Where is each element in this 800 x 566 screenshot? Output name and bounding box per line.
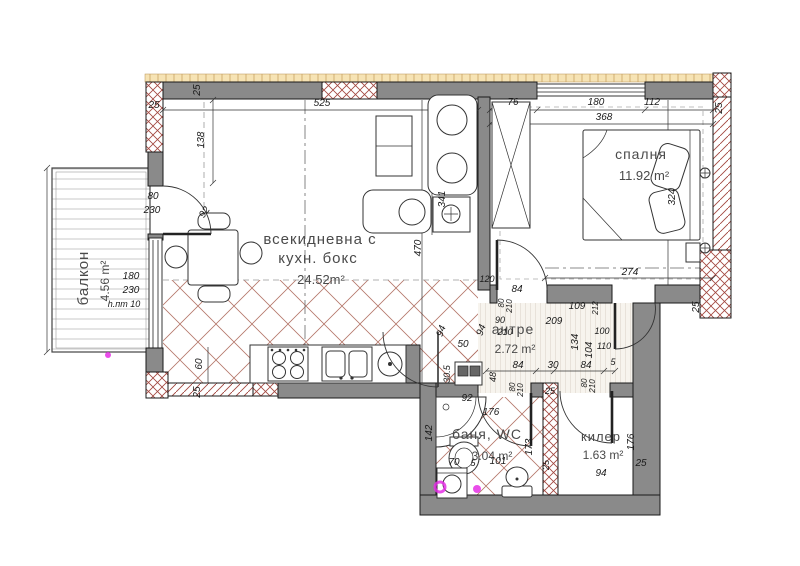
wall-left-bottom-pier [146,348,163,372]
wall-column-top [322,82,377,99]
dim-label-8: 230 [122,285,140,296]
kitchen-sink [322,347,372,381]
dim-label-19: 25 [691,301,702,314]
room-label-closet: килер [581,429,621,444]
dim-label-33: 104 [584,341,595,358]
dim-label-29: 90 [495,315,505,325]
wall-socket-symbol [700,243,710,253]
room-area-hallway: 2.72 m² [495,342,536,356]
room-label-bathroom: баня, WC [452,426,522,442]
room-area-bedroom: 11.92 m² [619,168,670,183]
room-area-living: 24.52m² [297,272,345,287]
dim-label-12: 112 [644,97,660,108]
room-label-living: всекидневна с [263,231,376,248]
wall-column-right-top [713,73,731,97]
dim-label-56: 25 [541,459,551,471]
dining-chair [198,286,230,302]
dim-label-43: 84 [512,360,524,371]
dim-label-21: 25 [192,386,203,399]
wall-kitchen-column [253,383,278,396]
wall-column-left-top [146,82,163,152]
vent-shaft [455,362,482,385]
sofa-cushion [437,153,467,183]
dim-label-2: 138 [196,131,207,148]
dim-label-55: 25 [544,386,556,396]
wall-kitchen-masonry [168,383,253,396]
dim-label-40: 48 [488,372,498,382]
floor-plan-page: балкон4.56 m²всекидневна скухн. бокс24.5… [0,0,800,566]
dim-label-23: 84 [511,284,523,295]
balcony-deck [52,168,150,352]
dim-label-13: 368 [596,112,613,123]
wall-left-pier [148,152,163,186]
dim-label-59: 25 [634,458,647,469]
room-label-balcony: балкон [75,251,92,306]
dim-label-26: 109 [569,301,586,312]
wall-kitchen-bottom [278,383,420,398]
floor-plan-drawing: балкон4.56 m²всекидневна скухн. бокс24.5… [0,0,800,566]
dining-chair [165,246,187,268]
balcony-structure [44,165,150,355]
kitchen-counter-group [250,345,406,383]
dim-label-52: 70 [448,457,460,468]
bedroom-window [537,84,645,96]
dim-label-20: 60 [194,358,205,370]
dining-table [188,230,238,285]
dim-label-50: 142 [424,424,435,441]
sofa-cushion [399,199,425,225]
dim-label-34: 100 [594,326,609,336]
dim-label-16: 470 [413,239,424,256]
dim-label-3: 525 [314,98,331,109]
dim-label-15: 341 [437,191,448,208]
sofa-cushion [437,105,467,135]
wall-column-left-bottom [146,372,168,398]
wall-socket-symbol [700,168,710,178]
dim-label-57: 94 [595,468,607,479]
dim-label-28: 209 [545,316,563,327]
dim-label-6: 230 [143,205,161,216]
living-window [149,238,162,348]
wall-right-external [713,97,731,250]
dim-label-32: 134 [570,333,581,350]
room-label-living-line2: кухн. бокс [278,250,358,267]
bedroom-furniture [492,102,710,262]
dim-label-30: 210 [496,327,512,337]
dim-label-35: 110 [597,341,611,351]
dim-label-17: 324 [667,188,678,205]
dim-label-7: 180 [123,271,140,282]
dim-label-54: 101 [490,456,507,467]
dim-label-47: 210 [588,379,597,394]
sofa-group [363,95,477,233]
dim-label-5: 80 [147,191,159,202]
room-area-closet: 1.63 m² [583,448,624,462]
room-label-bedroom: спалня [615,146,667,162]
dim-label-49: 210 [516,383,525,398]
dim-label-42: 176 [483,407,500,418]
dim-label-18: 274 [621,267,639,278]
dim-label-58: 176 [626,433,637,450]
dining-chair [240,242,262,264]
dim-label-14: 25 [714,102,725,115]
dim-label-38: 50 [457,339,469,350]
dim-label-27: 212 [591,301,600,316]
dim-label-45: 84 [580,360,592,371]
dim-label-41: 92 [461,393,473,404]
dim-label-25: 210 [505,299,514,314]
dim-label-22: 120 [479,274,494,284]
wall-bath-top-b [531,383,543,397]
shaft-column [543,383,558,512]
wall-kitchen-stub [406,345,420,383]
dim-label-44: 30 [547,360,559,371]
dim-label-0: 25 [192,84,203,97]
dim-label-11: 180 [588,97,605,108]
dim-label-9: h.пт 10 [108,299,140,309]
dim-label-1: 25 [147,100,160,111]
dim-label-51: 173 [524,438,535,455]
room-area-balcony: 4.56 m² [98,261,112,302]
bedroom-door [497,240,547,290]
wall-column-right-bottom [700,250,731,318]
dim-label-10: 76 [507,97,519,108]
bedside-bench [686,243,700,262]
wall-top-living [163,82,322,99]
dim-label-39: 30.5 [442,364,452,383]
